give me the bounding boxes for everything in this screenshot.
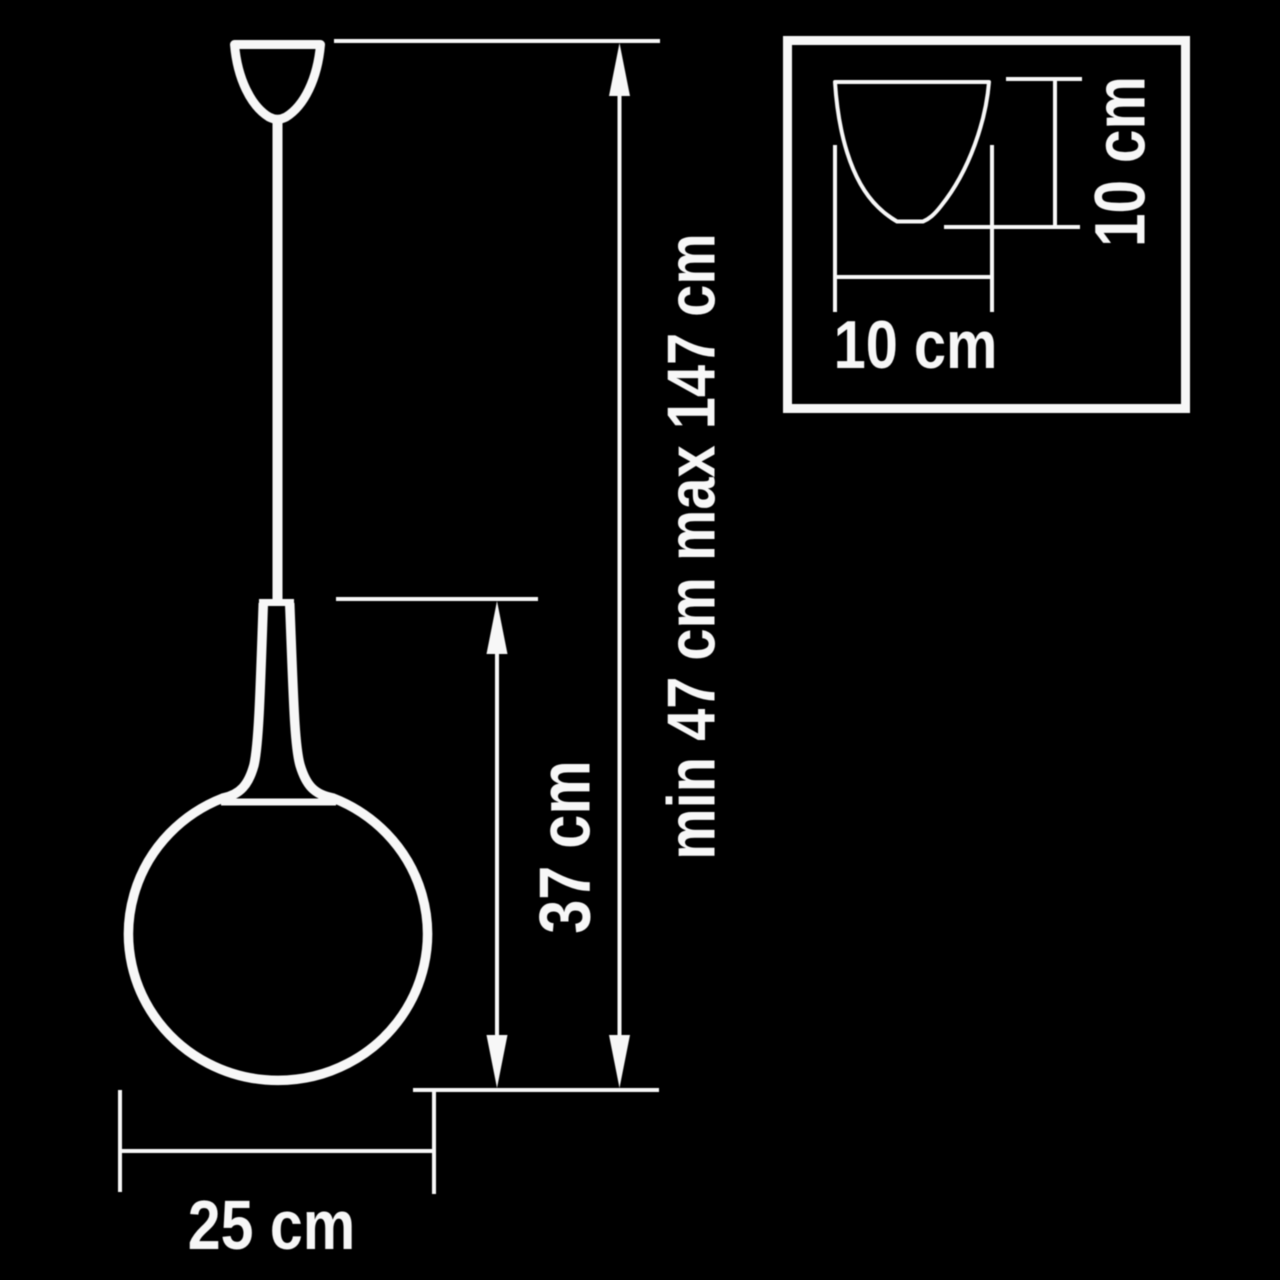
svg-text:25 cm: 25 cm bbox=[188, 1187, 355, 1265]
svg-text:min 47 cm max 147 cm: min 47 cm max 147 cm bbox=[654, 233, 729, 859]
svg-text:10 cm: 10 cm bbox=[834, 308, 998, 383]
svg-text:37 cm: 37 cm bbox=[526, 760, 606, 933]
svg-text:10 cm: 10 cm bbox=[1080, 76, 1160, 247]
